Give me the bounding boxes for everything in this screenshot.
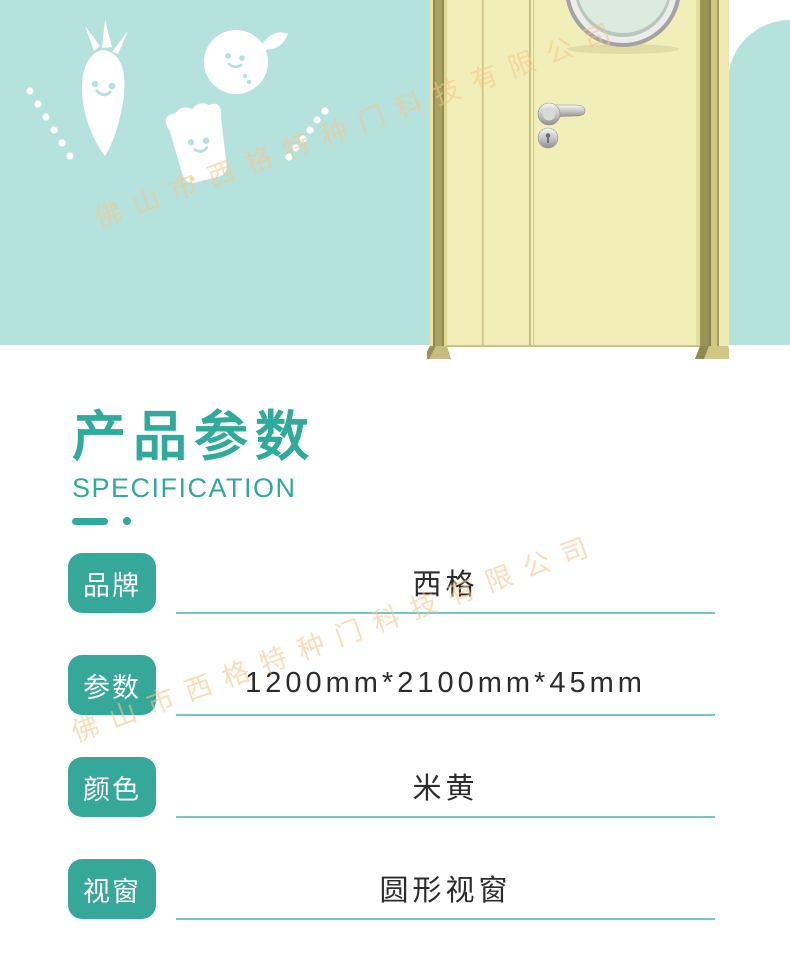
spec-row-color: 颜色 米黄 [68, 757, 715, 817]
orange-icon [198, 20, 296, 98]
door-frame-right [695, 0, 729, 359]
spec-value: 1200mm*2100mm*45mm [176, 655, 715, 716]
spec-value: 圆形视窗 [176, 859, 715, 920]
spec-label-badge: 参数 [68, 655, 156, 715]
section-subtitle: SPECIFICATION [72, 473, 316, 504]
door-illustration [427, 0, 729, 365]
bread-icon [156, 98, 246, 193]
spec-value: 西格 [176, 553, 715, 614]
spec-row-window: 视窗 圆形视窗 [68, 859, 715, 919]
spec-label-badge: 品牌 [68, 553, 156, 613]
spec-row-size: 参数 1200mm*2100mm*45mm [68, 655, 715, 715]
spec-table: 品牌 西格 参数 1200mm*2100mm*45mm 颜色 米黄 视窗 圆形视… [68, 553, 715, 961]
title-underline-decoration [72, 517, 316, 525]
spec-label-badge: 颜色 [68, 757, 156, 817]
spec-row-brand: 品牌 西格 [68, 553, 715, 613]
title-dot-decoration [123, 517, 131, 525]
spec-value: 米黄 [176, 757, 715, 818]
dots-right-decoration [282, 103, 334, 165]
spec-label-badge: 视窗 [68, 859, 156, 919]
porthole-window-icon [565, 0, 681, 54]
title-dash-decoration [72, 518, 108, 525]
section-title-block: 产品参数 SPECIFICATION [72, 408, 316, 525]
right-arch-shape [728, 20, 790, 345]
section-title: 产品参数 [72, 408, 316, 466]
product-spec-page: { "watermark": { "text": "佛山市西格特种门科技有限公司… [0, 0, 790, 937]
keyhole-icon [538, 128, 558, 148]
carrot-icon [60, 18, 145, 160]
